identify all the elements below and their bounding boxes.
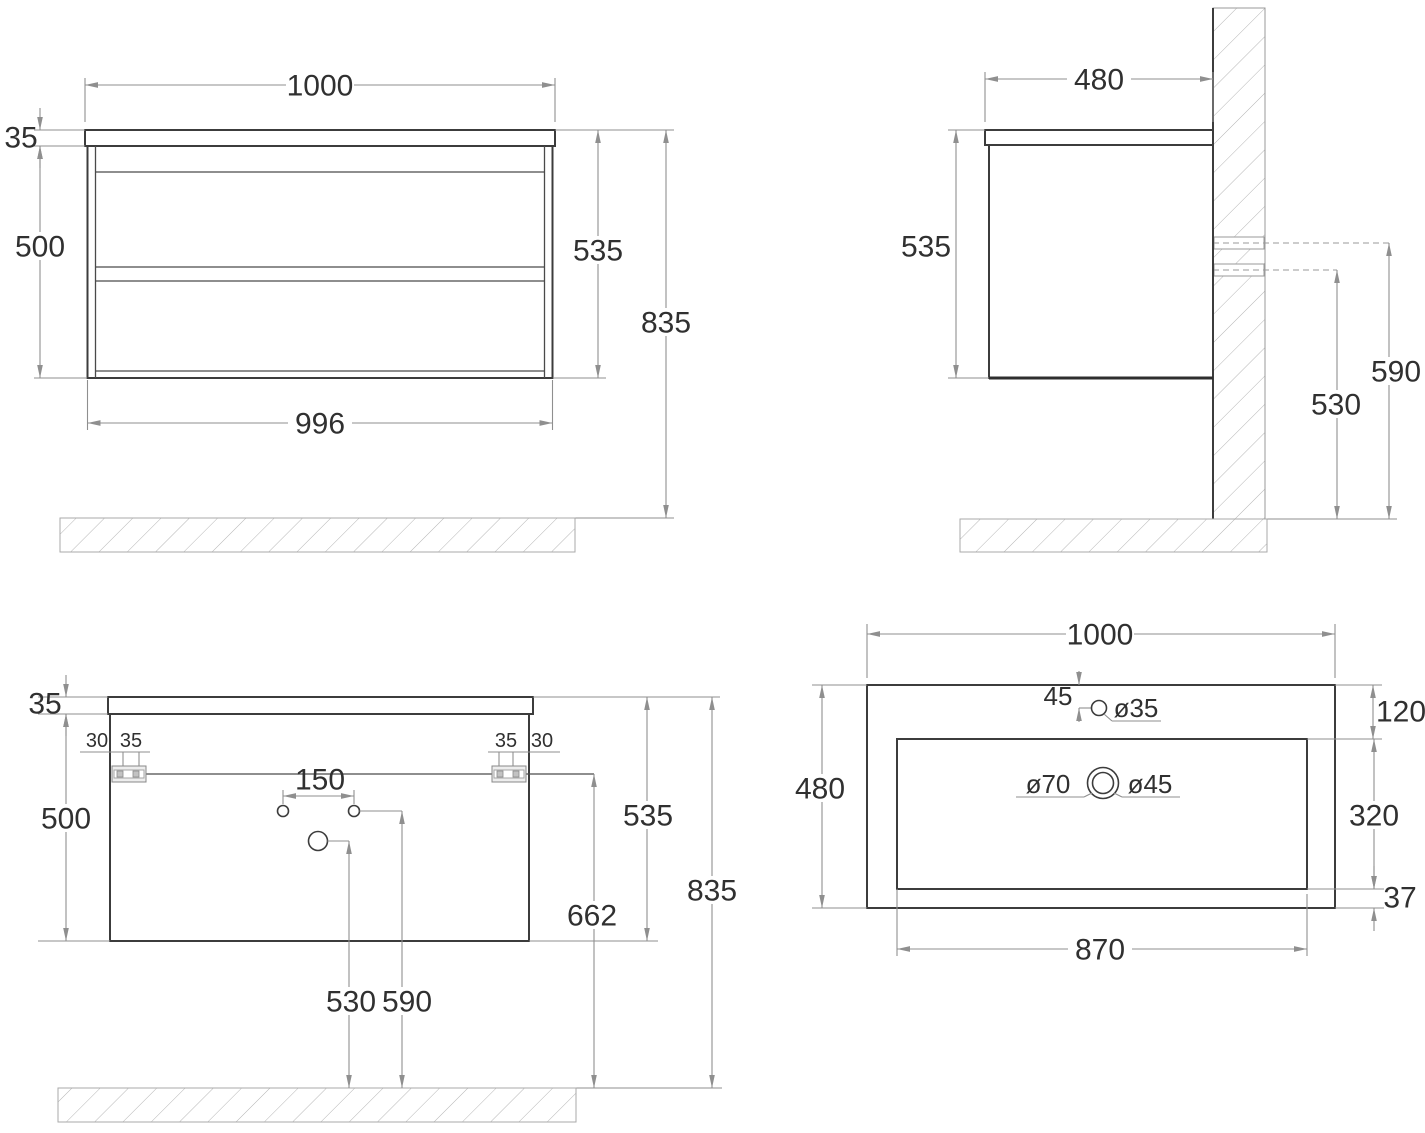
front-width-label: 1000 xyxy=(287,70,354,103)
front-total-height-label: 835 xyxy=(641,307,691,340)
front-top-thickness-label: 35 xyxy=(4,122,37,155)
top-dim-basin-width: 870 xyxy=(897,889,1307,967)
back-dim-tap-hole-spacing: 150 xyxy=(283,764,354,805)
back-supply-height-label: 590 xyxy=(382,986,432,1019)
back-left-offset-35-label: 35 xyxy=(120,730,142,752)
cabinet-body-back xyxy=(110,714,529,941)
side-dim-lower-fixing: 530 xyxy=(1304,270,1368,519)
back-body-height-label: 500 xyxy=(41,803,91,836)
top-depth-label: 480 xyxy=(795,773,845,806)
front-dim-total-height: 835 xyxy=(634,130,698,518)
back-total-height-label: 835 xyxy=(687,875,737,908)
back-dim-right-bracket-offsets: 35 30 xyxy=(488,730,560,766)
countertop-back xyxy=(108,697,533,714)
back-right-offset-35-label: 35 xyxy=(495,730,517,752)
top-width-label: 1000 xyxy=(1067,619,1134,652)
tap-hole-callout: ø35 xyxy=(1104,693,1161,723)
back-top-thickness-label: 35 xyxy=(28,688,61,721)
back-right-offset-30-label: 30 xyxy=(531,730,553,752)
front-body-width-label: 996 xyxy=(295,408,345,441)
right-bracket xyxy=(492,766,526,782)
front-dim-width: 1000 xyxy=(85,70,555,123)
side-depth-label: 480 xyxy=(1074,64,1124,97)
side-dim-height: 535 xyxy=(901,130,989,378)
cabinet-body-front xyxy=(88,146,553,378)
top-tap-hole-label: ø35 xyxy=(1114,693,1159,723)
top-rim-bottom-label: 37 xyxy=(1383,882,1416,915)
top-overflow-label: ø70 xyxy=(1026,769,1071,799)
top-basin-depth-label: 320 xyxy=(1349,800,1399,833)
side-dim-upper-fixing: 590 xyxy=(1364,243,1425,519)
front-view: 1000 35 500 535 835 xyxy=(4,70,698,553)
countertop-front xyxy=(85,130,555,146)
technical-drawing: 1000 35 500 535 835 xyxy=(0,0,1425,1133)
back-dim-drain-height: 530 xyxy=(321,841,381,1088)
side-height-label: 535 xyxy=(901,231,951,264)
back-view: 30 35 35 30 35 500 xyxy=(28,675,744,1122)
back-bracket-height-label: 662 xyxy=(567,900,617,933)
top-dim-rim-bottom: 37 xyxy=(1307,866,1417,931)
top-basin-width-label: 870 xyxy=(1075,934,1125,967)
front-dim-height: 535 xyxy=(553,130,674,378)
back-drain-height-label: 530 xyxy=(326,986,376,1019)
back-dim-bracket-height: 662 xyxy=(560,774,624,1088)
back-left-offset-30-label: 30 xyxy=(86,730,108,752)
back-height-label: 535 xyxy=(623,800,673,833)
drain-callout: ø45 xyxy=(1114,769,1180,799)
overflow-callout: ø70 xyxy=(1016,769,1092,799)
front-dim-top-thickness: 35 xyxy=(4,108,85,168)
tap-hole xyxy=(1092,701,1107,716)
top-view: 1000 480 45 ø35 120 xyxy=(788,619,1425,967)
front-body-height-label: 500 xyxy=(15,231,65,264)
top-dim-depth: 480 xyxy=(788,685,867,908)
back-dim-supply-height: 590 xyxy=(360,811,440,1088)
cabinet-body-side xyxy=(989,145,1213,378)
top-dim-rim-top: 120 xyxy=(1307,685,1425,739)
back-dim-total-height: 835 xyxy=(680,697,744,1088)
side-view: 480 535 590 530 xyxy=(901,8,1425,552)
back-tap-spacing-label: 150 xyxy=(295,764,345,797)
front-height-label: 535 xyxy=(573,235,623,268)
left-bracket xyxy=(112,766,146,782)
countertop-side xyxy=(985,130,1213,145)
supply-hole-right xyxy=(349,806,360,817)
floor-hatch xyxy=(60,518,575,552)
top-tap-offset-label: 45 xyxy=(1044,681,1073,711)
top-dim-tap-offset: 45 xyxy=(1044,671,1092,722)
front-dim-body-width: 996 xyxy=(88,380,553,441)
back-dim-top-thickness: 35 xyxy=(28,675,108,736)
supply-hole-left xyxy=(278,806,289,817)
technical-drawing-page: 1000 35 500 535 835 xyxy=(0,0,1425,1133)
drain-hole-back xyxy=(309,832,328,851)
front-dim-body-height: 500 xyxy=(8,146,87,378)
side-upper-fixing-label: 590 xyxy=(1371,356,1421,389)
back-floor-hatch xyxy=(58,1088,576,1122)
side-dim-depth: 480 xyxy=(985,64,1213,123)
basin-inner-bowl xyxy=(897,739,1307,889)
top-drain-label: ø45 xyxy=(1128,769,1173,799)
back-dim-left-bracket-offsets: 30 35 xyxy=(80,730,150,766)
side-floor-hatch xyxy=(960,519,1267,552)
top-rim-top-label: 120 xyxy=(1376,696,1425,729)
drain-hole-inner xyxy=(1093,773,1114,794)
top-dim-width: 1000 xyxy=(867,619,1335,679)
drawer-front-lines xyxy=(96,146,545,378)
side-lower-fixing-label: 530 xyxy=(1311,389,1361,422)
